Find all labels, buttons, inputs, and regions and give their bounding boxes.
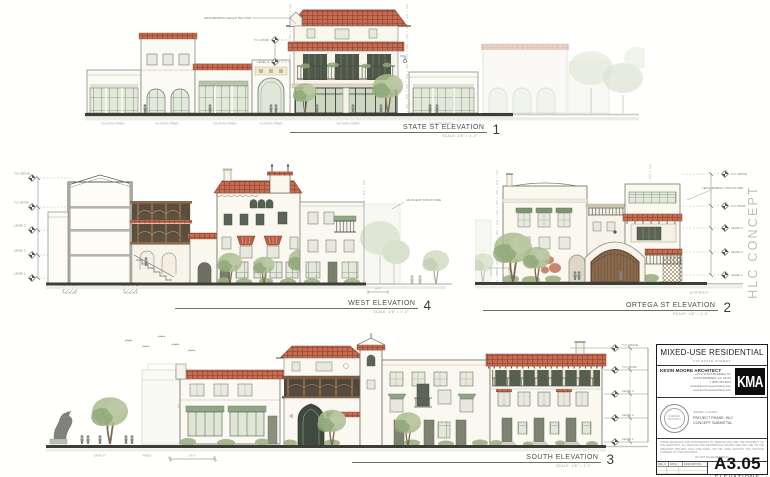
dimension: 24'-0"	[168, 454, 217, 463]
left-building	[489, 174, 587, 284]
ground-line	[46, 283, 452, 290]
svg-text:STATE ST: STATE ST	[94, 454, 106, 458]
submittal-type: CONCEPT SUBMITTAL	[693, 421, 765, 426]
svg-text:LEVEL 3: LEVEL 3	[14, 224, 26, 228]
horse-statue	[50, 411, 72, 444]
rev-col-header: DATE	[669, 462, 683, 466]
svg-text:LEVEL 3: LEVEL 3	[731, 226, 743, 230]
svg-text:700 STATE STREET: 700 STATE STREET	[101, 122, 125, 126]
svg-text:LEVEL 2: LEVEL 2	[14, 249, 26, 253]
context-right	[360, 204, 449, 284]
two-story-arched-building	[139, 33, 197, 113]
svg-text:710 STATE STREET: 710 STATE STREET	[259, 122, 283, 126]
elevation-scale: SCALE: 1/8" = 1'-0"	[352, 463, 601, 468]
elevation-scale: SCALE: 1/8" = 1'-0"	[483, 311, 718, 316]
label-south-elevation: SOUTH ELEVATION SCALE: 1/8" = 1'-0" 3	[352, 454, 614, 468]
kma-logo: KMA	[735, 368, 765, 395]
stamp-line: ARCHITECT	[667, 418, 681, 421]
label-west-elevation: WEST ELEVATION SCALE: 1/8" = 1'-0" 4	[175, 300, 431, 314]
drawing-sheet: NEIGHBORING HEIGHT BEYOND T.O. ROOF LEVE…	[0, 0, 770, 477]
svg-text:T.O. RIDGE: T.O. RIDGE	[731, 172, 747, 176]
architect-stamp: LICENSED ARCHITECT	[659, 401, 689, 435]
storefront-building-2	[193, 64, 254, 113]
street-labels: STATE ST PASEO	[94, 454, 151, 458]
svg-text:T.O. ROOF: T.O. ROOF	[622, 365, 637, 369]
ground-line	[46, 445, 648, 452]
revision-table: REV. # DATE DESCRIPTION	[657, 462, 708, 474]
svg-text:LEVEL 3: LEVEL 3	[622, 389, 634, 393]
building-b-arcade	[276, 346, 368, 447]
disclaimer-text: THESE DRAWINGS ARE INSTRUMENTS OF SERVIC…	[660, 441, 764, 454]
architect-section: KEVIN MOORE ARCHITECT 125 E SANTA BARBAR…	[657, 366, 767, 399]
architect-website: www.kevinmoorearchitect.com	[660, 389, 733, 393]
ground-line	[85, 113, 639, 121]
stamp-section: LICENSED ARCHITECT ISSUED: 4.14.2021 PRO…	[657, 398, 767, 439]
ground-line: @ ORTEGA ST	[475, 282, 743, 295]
elevation-title: STATE ST ELEVATION	[290, 124, 487, 133]
svg-text:T.O. RIDGE: T.O. RIDGE	[14, 172, 30, 176]
svg-text:T.O. ROOF: T.O. ROOF	[254, 38, 269, 42]
project-title: MIXED-USE RESIDENTIAL	[659, 348, 765, 357]
revision-rows	[657, 467, 707, 474]
svg-text:24'-0": 24'-0"	[189, 454, 196, 458]
building-a	[176, 364, 284, 447]
svg-text:704 STATE STREET: 704 STATE STREET	[155, 122, 179, 126]
svg-text:@ ORTEGA ST: @ ORTEGA ST	[690, 291, 709, 295]
birds	[125, 336, 195, 351]
rev-col-header: REV. #	[657, 462, 669, 466]
storefront-building-3	[409, 72, 478, 113]
elevation-number: 3	[606, 453, 614, 467]
svg-text:LEVEL 3: LEVEL 3	[257, 60, 269, 64]
right-building	[300, 202, 364, 286]
svg-text:LEVEL 2: LEVEL 2	[731, 250, 743, 254]
hlc-concept-watermark: HLC CONCEPT	[746, 185, 760, 299]
sheet-number-section: A3.05 ELEVATIONS	[708, 462, 767, 474]
svg-text:LEVEL 1: LEVEL 1	[622, 437, 634, 441]
title-block: MIXED-USE RESIDENTIAL 710 STATE STREET K…	[656, 344, 768, 475]
label-state-st-elevation: STATE ST ELEVATION SCALE: 1/8" = 1'-0" 1	[290, 124, 500, 138]
pedestrians-left	[80, 397, 133, 444]
sheet-number: A3.05	[714, 455, 761, 472]
svg-text:ADJACENT STRUCTURE: ADJACENT STRUCTURE	[406, 198, 441, 202]
svg-text:LEVEL 1: LEVEL 1	[731, 273, 743, 277]
rev-col-header: DESCRIPTION	[683, 462, 707, 466]
elevation-number: 4	[423, 299, 431, 313]
tower	[357, 333, 385, 446]
elevation-scale: SCALE: 1/8" = 1'-0"	[175, 309, 418, 314]
issue-date: ISSUED: 4.14.2021	[693, 410, 765, 414]
svg-text:LEVEL 2: LEVEL 2	[622, 413, 634, 417]
lower-wing	[188, 233, 219, 284]
svg-text:T.O. ROOF: T.O. ROOF	[731, 204, 746, 208]
elevation-title: ORTEGA ST ELEVATION	[483, 302, 718, 311]
storefront-building-1	[87, 70, 141, 113]
svg-text:16'-0": 16'-0"	[375, 287, 382, 291]
svg-text:NEIGHBORING STRUCTURE: NEIGHBORING STRUCTURE	[702, 186, 743, 190]
elevation-number: 1	[492, 123, 500, 137]
project-address: 710 STATE STREET	[659, 359, 765, 363]
label-ortega-st-elevation: ORTEGA ST ELEVATION SCALE: 1/8" = 1'-0" …	[483, 302, 731, 316]
courtyard-arcade	[130, 201, 192, 284]
ortega-st-elevation-drawing: T.O. RIDGE T.O. ROOF LEVEL 3 LEVEL 2 LEV…	[475, 162, 750, 314]
elevation-number: 2	[723, 301, 731, 315]
elevation-title: SOUTH ELEVATION	[352, 454, 601, 463]
height-annotation: NEIGHBORING HEIGHT BEYOND	[204, 16, 296, 24]
west-elevation-drawing: T.O. RIDGE T.O. ROOF LEVEL 3 LEVEL 2 LEV…	[12, 162, 457, 314]
elevation-title: WEST ELEVATION	[175, 300, 418, 309]
svg-text:T.O. RIDGE: T.O. RIDGE	[622, 343, 638, 347]
building-section-cut	[48, 175, 137, 293]
svg-text:T.O. ROOF: T.O. ROOF	[14, 201, 29, 205]
project-title-section: MIXED-USE RESIDENTIAL 710 STATE STREET	[657, 345, 767, 366]
svg-text:LEVEL 1: LEVEL 1	[14, 272, 26, 276]
elevation-scale: SCALE: 1/8" = 1'-0"	[290, 133, 487, 138]
context-buildings	[481, 44, 645, 113]
building-d	[486, 342, 606, 447]
svg-text:NEIGHBORING HEIGHT BEYOND: NEIGHBORING HEIGHT BEYOND	[204, 16, 252, 20]
svg-text:706 STATE STREET: 706 STATE STREET	[213, 122, 237, 126]
svg-text:PASEO: PASEO	[143, 454, 152, 458]
structure-note: NEIGHBORING STRUCTURE	[687, 186, 743, 200]
